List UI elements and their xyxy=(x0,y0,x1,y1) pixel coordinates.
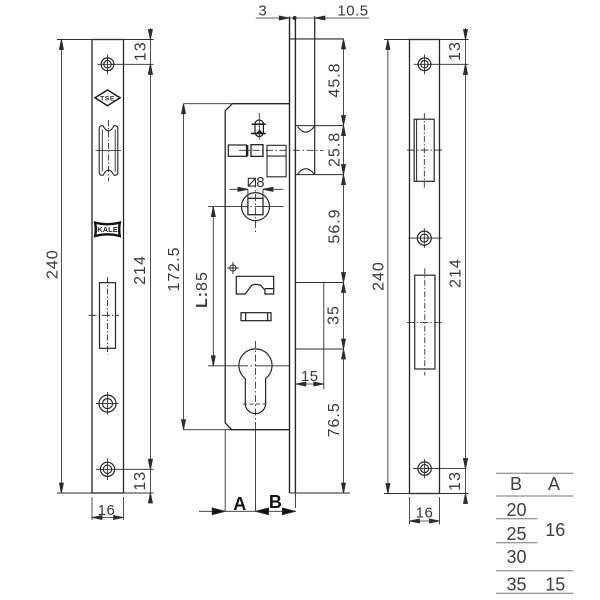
svg-text:15: 15 xyxy=(301,368,319,385)
svg-text:8: 8 xyxy=(256,174,265,191)
svg-text:L:85: L:85 xyxy=(194,271,211,308)
svg-text:13: 13 xyxy=(133,41,150,61)
svg-text:214: 214 xyxy=(132,255,149,285)
svg-text:30: 30 xyxy=(506,547,526,567)
svg-text:20: 20 xyxy=(506,500,526,520)
svg-text:A: A xyxy=(548,474,560,494)
svg-text:13: 13 xyxy=(447,471,464,491)
svg-text:214: 214 xyxy=(448,258,465,288)
svg-text:25: 25 xyxy=(506,524,526,544)
svg-text:B: B xyxy=(510,474,522,494)
svg-text:172.5: 172.5 xyxy=(166,246,183,291)
svg-text:56.9: 56.9 xyxy=(326,208,343,243)
svg-text:16: 16 xyxy=(98,502,116,519)
svg-text:10.5: 10.5 xyxy=(337,3,368,20)
svg-text:B: B xyxy=(269,492,282,512)
svg-text:35: 35 xyxy=(506,574,526,594)
svg-text:240: 240 xyxy=(371,261,388,291)
svg-text:3: 3 xyxy=(258,3,267,20)
svg-text:16: 16 xyxy=(416,505,434,522)
svg-text:A: A xyxy=(233,494,246,514)
svg-text:13: 13 xyxy=(132,471,149,491)
svg-text:240: 240 xyxy=(45,249,62,279)
svg-text:KALE: KALE xyxy=(97,225,117,234)
svg-text:45.8: 45.8 xyxy=(327,62,344,97)
svg-text:25.8: 25.8 xyxy=(326,132,343,167)
svg-text:76.5: 76.5 xyxy=(326,402,343,437)
svg-text:35: 35 xyxy=(326,305,343,325)
svg-text:15: 15 xyxy=(545,574,565,594)
svg-text:TSE: TSE xyxy=(100,95,115,102)
svg-text:13: 13 xyxy=(447,41,464,61)
svg-text:16: 16 xyxy=(545,520,565,540)
